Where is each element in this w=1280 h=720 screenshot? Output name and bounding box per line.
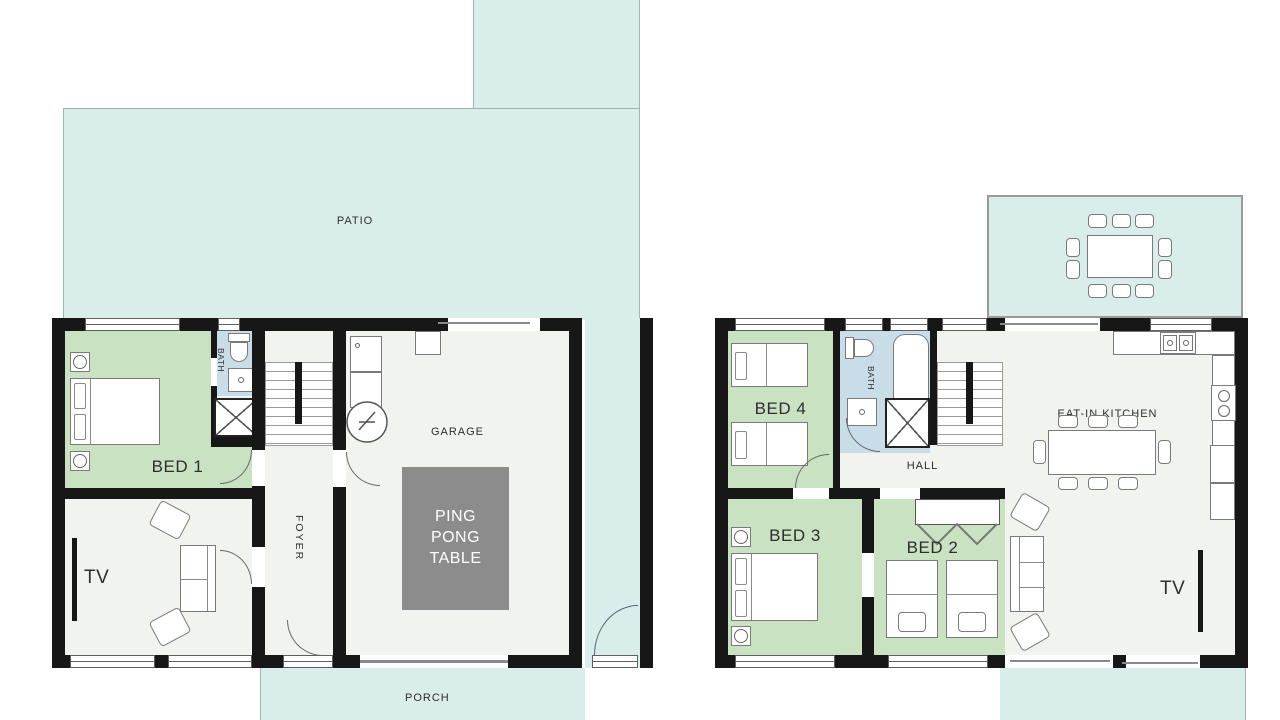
lounge-sliding-door-1 <box>1010 660 1110 662</box>
bed2-nightstand-left <box>898 612 926 632</box>
kitchen-chair <box>1118 415 1138 428</box>
kitchen-sliding-door <box>1000 323 1098 325</box>
bed3-door-gap <box>862 553 874 597</box>
stairs1-divider <box>295 362 302 424</box>
kitchen-chair <box>1058 415 1078 428</box>
garage-label: GARAGE <box>400 426 515 438</box>
living-door-gap <box>252 547 265 587</box>
kitchen-sink-icon <box>1160 332 1196 354</box>
deck-chair <box>1135 214 1154 228</box>
kitchen-chair <box>1088 415 1108 428</box>
fridge-icon <box>1210 445 1235 483</box>
tv2-screen <box>1198 550 1203 632</box>
stairs2-divider <box>966 362 973 424</box>
toilet2-icon <box>845 337 875 359</box>
bed1-top-window <box>85 318 180 331</box>
bed4-single-bed-top <box>731 343 808 387</box>
bed3-label: BED 3 <box>745 526 845 546</box>
foyer-front-door <box>283 655 333 668</box>
bath2-top-window-2 <box>890 318 928 331</box>
kitchen-chair <box>1158 440 1171 464</box>
garage-sliding-gap <box>448 318 540 331</box>
deck-chair <box>1088 214 1107 228</box>
stairs2-top-window <box>942 318 987 331</box>
bed3-lamp-top <box>731 527 751 547</box>
washer-icon <box>350 336 382 372</box>
shower2-icon <box>885 398 930 448</box>
bath2-label: BATH <box>866 366 876 390</box>
foyer-label: FOYER <box>293 515 305 561</box>
lounge-sliding-door-2 <box>1122 662 1198 664</box>
tv1-label: TV <box>84 567 109 589</box>
water-heater-icon <box>345 400 389 444</box>
bed2-door-gap <box>880 488 920 499</box>
bed4-door-gap <box>793 488 829 499</box>
pantry-icon <box>1210 483 1235 520</box>
bedrooms-top-wall <box>715 488 1005 499</box>
porch2-area <box>1000 668 1246 720</box>
garage-left-wall <box>333 331 346 655</box>
bath2-right-wall <box>930 331 937 445</box>
deck-chair <box>1112 214 1131 228</box>
lounge-sofa <box>1010 536 1044 612</box>
deck-chair <box>1112 284 1131 298</box>
deck-chair <box>1066 238 1080 257</box>
bed2-nightstand-right <box>958 612 986 632</box>
ping-pong-label: PING PONG TABLE <box>413 507 499 569</box>
deck-chair <box>1135 284 1154 298</box>
patio-area-top <box>473 0 640 112</box>
deck-chair <box>1066 260 1080 279</box>
ping-pong-table: PING PONG TABLE <box>402 467 509 610</box>
bed3-lamp-bottom <box>731 626 751 646</box>
porch-label: PORCH <box>405 692 465 704</box>
bed4-top-window <box>735 318 825 331</box>
bed4-right-wall <box>833 331 840 488</box>
tv1-screen <box>72 538 77 621</box>
bath1-label: BATH <box>216 348 226 372</box>
living-bottom-window-1 <box>70 655 155 668</box>
deck-chair <box>1088 284 1107 298</box>
patio-area-main <box>63 108 640 320</box>
kitchen-top-window <box>1150 318 1212 331</box>
living-bottom-window-2 <box>168 655 252 668</box>
kitchen-table <box>1048 430 1156 475</box>
bed4-single-bed-bottom <box>731 422 808 466</box>
bed4-label: BED 4 <box>733 399 828 419</box>
bed3-bottom-window <box>735 655 835 668</box>
side-passage-outer-wall <box>640 318 653 668</box>
garage-door-gap <box>333 450 346 487</box>
bath2-top-window-1 <box>845 318 883 331</box>
bed2-bottom-window <box>888 655 988 668</box>
deck-table <box>1087 235 1153 278</box>
hall-label: HALL <box>890 460 955 472</box>
kitchen-chair <box>1118 477 1138 490</box>
side-passage-bottom-door <box>592 655 638 668</box>
bath1-top-window <box>218 318 240 331</box>
kitchen-chair <box>1058 477 1078 490</box>
deck-chair <box>1158 260 1172 279</box>
bed1-label: BED 1 <box>130 457 225 477</box>
bed1-lamp-top <box>70 352 90 372</box>
bed1-lamp-bottom <box>70 451 90 471</box>
stove-icon <box>1211 385 1236 421</box>
garage-sliding-door <box>438 322 530 324</box>
bed1-door-gap <box>252 450 265 486</box>
kitchen-chair <box>1033 440 1046 464</box>
bed1-double-bed <box>70 378 160 445</box>
kitchen-chair <box>1088 477 1108 490</box>
bed3-double-bed <box>731 553 818 621</box>
living-sofa <box>180 545 216 612</box>
garage-cabinet <box>415 331 441 355</box>
tv2-label: TV <box>1160 578 1185 600</box>
bath1-sink-icon <box>228 368 254 392</box>
bed2-label: BED 2 <box>885 538 980 558</box>
bed1-bottom-wall <box>52 488 262 499</box>
patio-label: PATIO <box>300 215 410 227</box>
garage-bottom-door <box>360 660 508 663</box>
floorplan-canvas: PATIO PORCH BED 1 BATH TV <box>0 0 1280 720</box>
deck-chair <box>1158 238 1172 257</box>
toilet-icon <box>228 333 250 363</box>
